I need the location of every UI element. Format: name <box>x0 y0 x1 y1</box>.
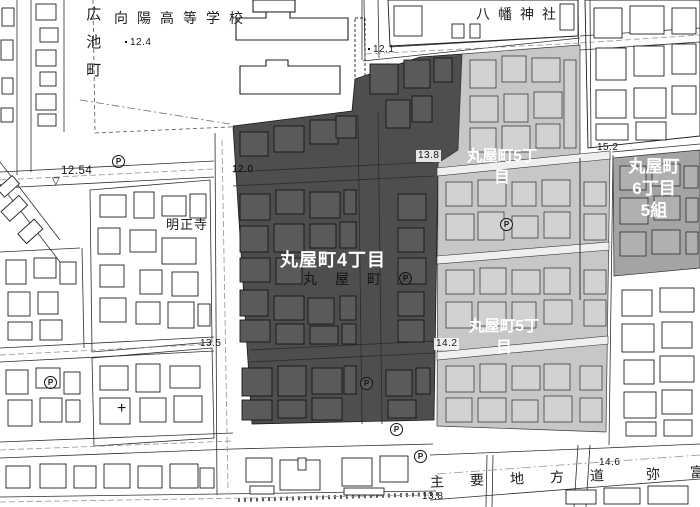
district-6-label-line2: 6丁目 <box>612 178 696 200</box>
district-5-bottom-label-line2: 目 <box>452 337 556 358</box>
elevation-15-2: 15.2 <box>597 142 618 154</box>
district-6-label-line1: 丸屋町 <box>612 156 696 178</box>
elevation-13-5: 13.5 <box>200 338 221 350</box>
koyo-high-school-label: 向陽高等学校 <box>114 10 252 26</box>
road-name-char: 弥 <box>646 466 661 483</box>
survey-cross-icon: + <box>117 400 126 418</box>
district-5-bottom-label-line1: 丸屋町5丁 <box>452 316 556 337</box>
elevation-12-1: 12.1 <box>373 44 394 56</box>
map-canvas[interactable]: 広池町 向陽高等学校 八幡神社 明正寺 12.4 12.54 ▽ 12.1 12… <box>0 0 700 507</box>
maruya-cho-basemap-label: 丸屋町 <box>303 271 399 287</box>
hachiman-shrine-label: 八幡神社 <box>476 6 564 22</box>
road-name-char-partial: 富 <box>690 464 700 481</box>
parking-icon: P <box>399 272 412 285</box>
elevation-12-0: 12.0 <box>232 164 253 176</box>
elevation-13-8-upper: 13.8 <box>416 150 441 162</box>
elevation-12-54: 12.54 <box>61 165 92 178</box>
elevation-13-8-lower: 13.8 <box>422 491 443 503</box>
district-4-label: 丸屋町4丁目 <box>280 246 386 272</box>
parking-icon: P <box>500 218 513 231</box>
district-6-label: 丸屋町 6丁目 5組 <box>612 156 696 222</box>
district-5-top-label-line2: 目 <box>450 167 554 188</box>
district-5-top-label: 丸屋町5丁 目 <box>450 146 554 188</box>
district-5-bottom-label: 丸屋町5丁 目 <box>452 316 556 358</box>
parking-icon: P <box>414 450 427 463</box>
meishoji-temple-label: 明正寺 <box>166 218 208 233</box>
benchmark-icon: ▽ <box>52 176 60 187</box>
elevation-12-4: 12.4 <box>130 37 151 49</box>
parking-icon: P <box>112 155 125 168</box>
parking-icon: P <box>390 423 403 436</box>
district-6-label-line3: 5組 <box>612 200 696 222</box>
hiroike-cho-label: 広池町 <box>84 6 101 90</box>
parking-icon: P <box>44 376 57 389</box>
parking-icon: P <box>360 377 373 390</box>
district-5-top-label-line1: 丸屋町5丁 <box>450 146 554 167</box>
